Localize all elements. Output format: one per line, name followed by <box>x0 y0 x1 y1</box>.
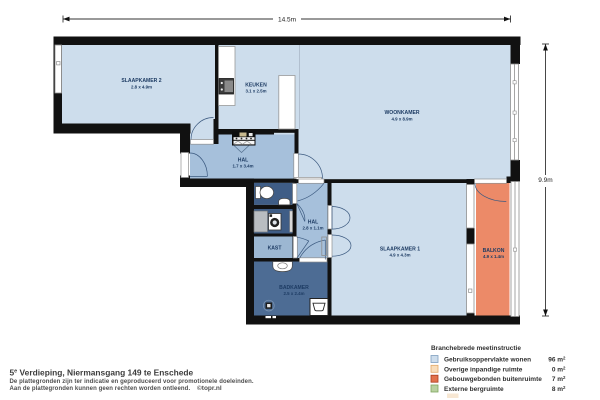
svg-text:BADKAMER: BADKAMER <box>279 285 309 291</box>
svg-text:SLAAPKAMER 1: SLAAPKAMER 1 <box>380 246 420 252</box>
svg-text:HAL: HAL <box>308 219 318 225</box>
svg-text:Externe bergruimte: Externe bergruimte <box>444 386 504 393</box>
svg-text:3.1 x 2.5m: 3.1 x 2.5m <box>246 89 267 94</box>
svg-text:2.8 x 4.9m: 2.8 x 4.9m <box>131 84 152 89</box>
svg-text:©topr.nl: ©topr.nl <box>197 384 222 392</box>
svg-text:2.8 x 1.1m: 2.8 x 1.1m <box>303 226 324 231</box>
svg-text:Overige inpandige ruimte: Overige inpandige ruimte <box>444 366 523 373</box>
svg-text:14.5m: 14.5m <box>278 16 296 23</box>
svg-text:4.9 x 8.9m: 4.9 x 8.9m <box>392 116 413 121</box>
svg-text:Gebruiksoppervlakte wonen: Gebruiksoppervlakte wonen <box>444 357 531 364</box>
svg-text:Aan de plattegronden kunnen ge: Aan de plattegronden kunnen geen rechten… <box>10 386 191 392</box>
svg-text:2.5 x 2.4m: 2.5 x 2.4m <box>284 291 305 296</box>
svg-text:4.9 x 4.3m: 4.9 x 4.3m <box>390 253 411 258</box>
svg-text:KAST: KAST <box>268 246 283 252</box>
svg-text:KEUKEN: KEUKEN <box>245 82 267 88</box>
svg-text:Branchebrede meetinstructie: Branchebrede meetinstructie <box>431 345 521 352</box>
svg-text:4.9 x 1.4m: 4.9 x 1.4m <box>483 254 504 259</box>
svg-text:9.9m: 9.9m <box>538 177 552 184</box>
svg-text:Gebouwgebonden buitenruimte: Gebouwgebonden buitenruimte <box>444 376 542 383</box>
svg-text:SLAAPKAMER 2: SLAAPKAMER 2 <box>121 78 161 84</box>
svg-text:1.7 x 3.4m: 1.7 x 3.4m <box>233 163 254 168</box>
svg-text:5e Verdieping, Niermansgang 14: 5e Verdieping, Niermansgang 149 te Ensch… <box>10 367 194 377</box>
svg-text:WOONKAMER: WOONKAMER <box>384 110 419 116</box>
